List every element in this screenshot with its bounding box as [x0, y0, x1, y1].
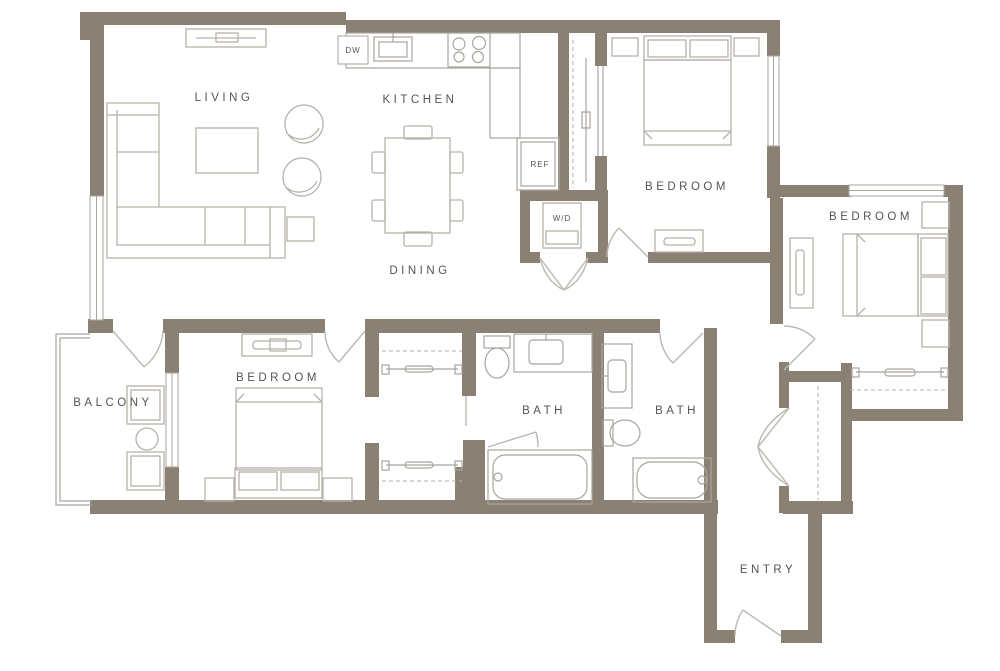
bed	[843, 234, 918, 316]
hall-closet-doors	[758, 408, 789, 486]
dining-table-set	[372, 126, 463, 246]
dining-chair	[450, 200, 463, 221]
balcony-door	[113, 331, 163, 367]
dining-chair	[404, 126, 432, 139]
bedroom-top-label: BEDROOM	[645, 181, 729, 193]
bedroom-top-window	[768, 56, 779, 146]
dining-chair	[372, 200, 385, 221]
side-table	[287, 217, 314, 241]
living-room-furniture	[107, 29, 323, 258]
washer-dryer-doors	[540, 258, 588, 290]
coffee-table	[196, 128, 258, 173]
kitchen-counter	[346, 33, 520, 68]
bath-second-door	[660, 333, 703, 363]
bed	[236, 388, 322, 470]
kitchen-fixtures	[338, 33, 559, 190]
dining-label: DINING	[389, 265, 450, 277]
washer-dryer-label: W/D	[553, 214, 572, 223]
bedroom-top-door	[607, 228, 648, 257]
bedroom-right-furniture	[790, 202, 949, 390]
nightstand	[922, 320, 949, 347]
bathtub	[488, 450, 592, 504]
living-window	[90, 196, 103, 320]
dining-chair	[404, 232, 432, 246]
pillow	[648, 40, 686, 57]
dresser	[242, 334, 312, 356]
floor-plan-drawing: LIVING KITCHEN DINING BEDROOM BEDROOM BE…	[0, 0, 1000, 666]
kitchen-sink	[374, 33, 412, 61]
lounge-chair	[283, 158, 321, 196]
living-label: LIVING	[195, 92, 254, 104]
dining-chair	[372, 152, 385, 173]
closet-rod	[850, 368, 948, 390]
toilet	[484, 336, 510, 378]
bath-second-label: BATH	[655, 405, 699, 417]
lounge-chair	[285, 105, 323, 143]
vanity-sink	[602, 344, 632, 408]
tv-console	[186, 29, 266, 47]
entry-door	[735, 610, 781, 636]
bath-main-fixtures	[484, 334, 592, 504]
balcony-table	[136, 428, 158, 450]
walls	[80, 12, 963, 643]
washer-dryer	[543, 203, 581, 248]
toilet	[603, 420, 640, 446]
kitchen-counter-arm	[490, 68, 520, 138]
nightstand	[612, 38, 638, 56]
refrigerator-label: REF	[531, 160, 550, 169]
closet-rod	[382, 461, 462, 481]
dining-table	[385, 138, 450, 233]
vanity-sink	[514, 334, 592, 372]
bedroom-left-furniture	[205, 334, 352, 501]
bath-main-label: BATH	[522, 405, 566, 417]
pillow	[921, 277, 946, 314]
bedroom-right-label: BEDROOM	[829, 211, 913, 223]
kitchen-label: KITCHEN	[383, 94, 458, 106]
floor-plan: LIVING KITCHEN DINING BEDROOM BEDROOM BE…	[0, 0, 1000, 666]
bedroom-left-window	[166, 373, 178, 467]
windows	[90, 56, 944, 467]
bed	[644, 60, 731, 145]
balcony-label: BALCONY	[73, 397, 152, 409]
nightstand	[205, 478, 234, 501]
dresser	[655, 230, 703, 252]
closet-rod	[382, 351, 462, 374]
pillow	[921, 238, 946, 275]
entry-label: ENTRY	[740, 564, 796, 576]
pillow	[690, 40, 728, 57]
bath-second-fixtures	[602, 344, 711, 502]
bedroom-left-label: BEDROOM	[236, 372, 320, 384]
balcony-rail	[56, 334, 92, 505]
pillow	[281, 472, 319, 490]
nightstand	[323, 478, 352, 501]
bedroom-right-window	[849, 185, 944, 196]
stove	[448, 33, 490, 67]
nightstand	[734, 38, 759, 56]
bathtub	[633, 458, 711, 502]
bedroom-left-door	[325, 331, 365, 362]
dishwasher-label: DW	[345, 46, 360, 55]
dining-chair	[450, 152, 463, 173]
dresser	[790, 238, 813, 308]
pillow	[239, 472, 277, 490]
bath-main-door	[466, 396, 538, 447]
sectional-sofa	[107, 103, 285, 258]
nightstand	[922, 202, 949, 228]
balcony-chair	[127, 452, 164, 490]
